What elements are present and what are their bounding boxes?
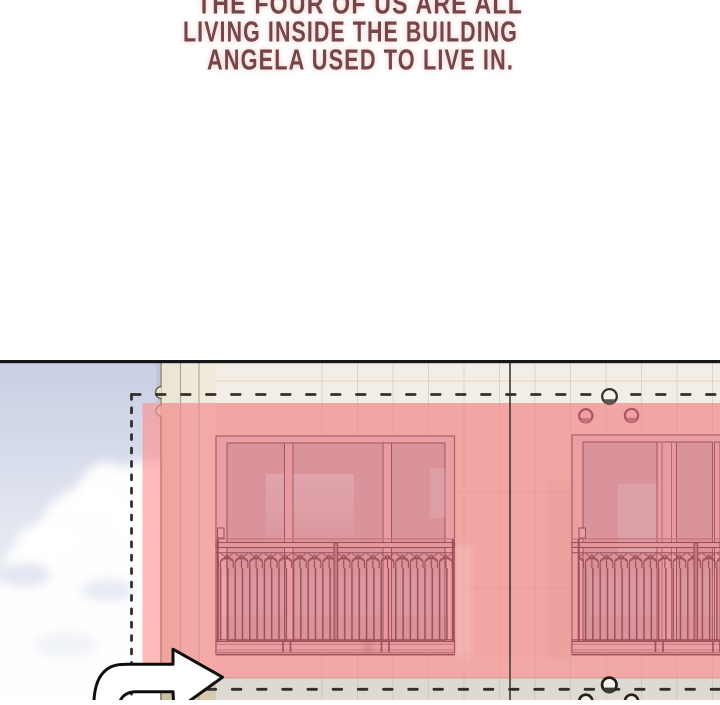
svg-text:ANGELA USED TO LIVE IN.: ANGELA USED TO LIVE IN.	[207, 45, 514, 77]
